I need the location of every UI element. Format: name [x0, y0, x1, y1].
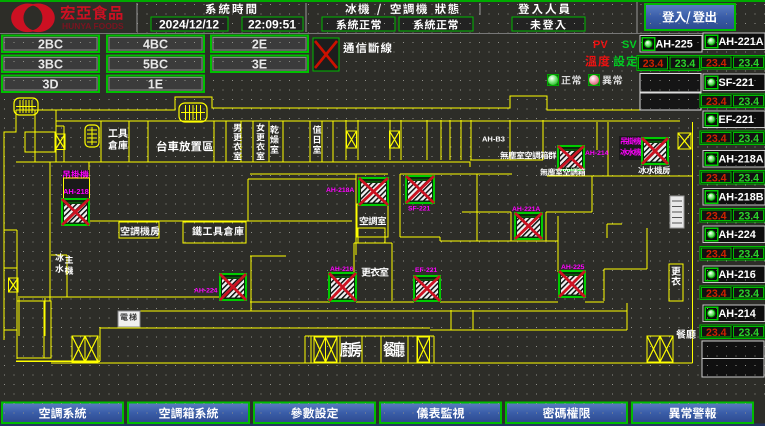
svg-text:1E: 1E	[148, 77, 163, 91]
svg-text:AH-224: AH-224	[194, 288, 218, 295]
svg-text:AH-225: AH-225	[561, 264, 585, 271]
svg-text:23.4: 23.4	[706, 327, 727, 339]
svg-text:23.4: 23.4	[675, 58, 696, 70]
svg-text:23.4: 23.4	[706, 288, 727, 300]
svg-text:23.4: 23.4	[706, 96, 727, 108]
svg-text:2BC: 2BC	[38, 37, 63, 51]
svg-text:3D: 3D	[43, 77, 59, 91]
svg-text:SF-221: SF-221	[719, 77, 754, 89]
svg-text:3BC: 3BC	[38, 57, 63, 71]
svg-text:2024/12/12: 2024/12/12	[159, 18, 219, 32]
svg-text:AH-218A: AH-218A	[719, 154, 764, 166]
svg-text:AH-B3: AH-B3	[482, 135, 505, 144]
svg-text:23.4: 23.4	[706, 133, 727, 145]
svg-text:AH-224: AH-224	[719, 229, 756, 241]
svg-text:5BC: 5BC	[143, 57, 168, 71]
svg-text:23.4: 23.4	[643, 58, 664, 70]
svg-text:23.4: 23.4	[738, 288, 759, 300]
svg-text:SV: SV	[622, 39, 637, 51]
svg-text:AH-218: AH-218	[63, 187, 89, 196]
svg-text:23.4: 23.4	[738, 327, 759, 339]
svg-text:3E: 3E	[252, 57, 267, 71]
svg-text:EF-221: EF-221	[415, 267, 438, 274]
svg-text:2E: 2E	[252, 37, 267, 51]
svg-text:23.4: 23.4	[738, 172, 759, 184]
svg-text:22:09:51: 22:09:51	[248, 18, 296, 32]
svg-text:HUNYA FOODS: HUNYA FOODS	[62, 21, 124, 31]
svg-text:AH-218B: AH-218B	[719, 192, 764, 204]
svg-text:23.4: 23.4	[706, 57, 727, 69]
svg-text:23.4: 23.4	[738, 96, 759, 108]
svg-text:SF-221: SF-221	[408, 206, 431, 213]
svg-text:AH-216: AH-216	[719, 269, 756, 281]
svg-text:AH-221A: AH-221A	[512, 206, 540, 213]
svg-text:EF-221: EF-221	[719, 114, 754, 126]
svg-text:AH-218A: AH-218A	[326, 187, 354, 194]
svg-text:23.4: 23.4	[738, 133, 759, 145]
svg-text:AH-221A: AH-221A	[719, 36, 764, 48]
svg-text:23.4: 23.4	[706, 248, 727, 260]
svg-text:23.4: 23.4	[738, 248, 759, 260]
svg-text:23.4: 23.4	[706, 210, 727, 222]
svg-text:AH-225: AH-225	[656, 39, 693, 51]
svg-text:23.4: 23.4	[706, 172, 727, 184]
svg-text:AH-214: AH-214	[719, 308, 756, 320]
svg-text:AH-214: AH-214	[585, 150, 609, 157]
svg-text:PV: PV	[593, 39, 608, 51]
svg-text:AH-216: AH-216	[330, 266, 354, 273]
svg-text:23.4: 23.4	[738, 57, 759, 69]
svg-text:23.4: 23.4	[738, 210, 759, 222]
svg-text:4BC: 4BC	[143, 37, 168, 51]
